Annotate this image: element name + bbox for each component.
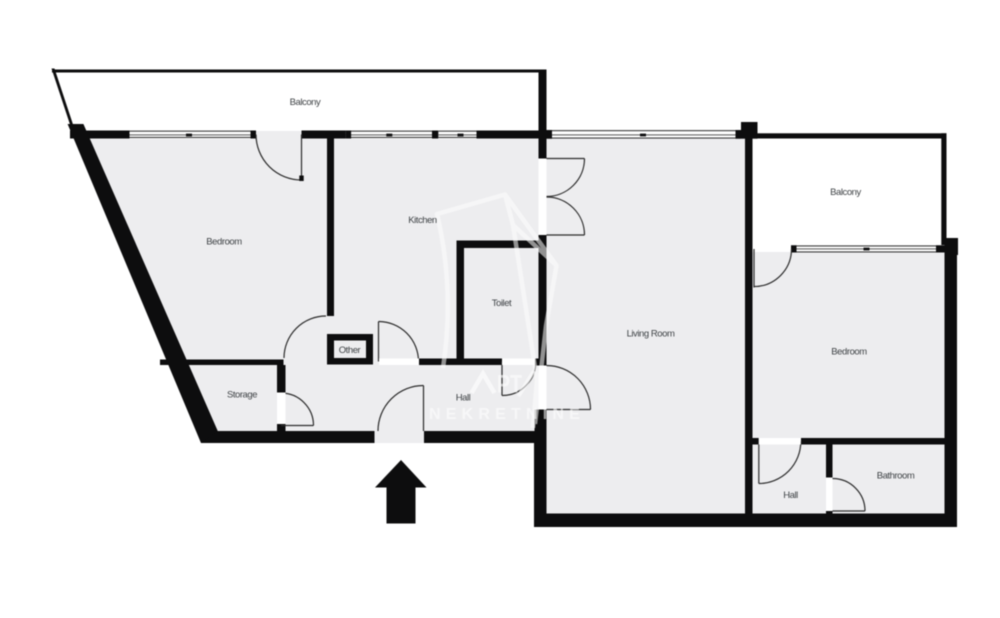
svg-text:NEKRETNINE: NEKRETNINE bbox=[429, 406, 585, 423]
svg-text:Bathroom: Bathroom bbox=[877, 471, 915, 482]
svg-text:Bedroom: Bedroom bbox=[206, 237, 242, 248]
svg-text:Other: Other bbox=[339, 345, 361, 356]
svg-text:Hall: Hall bbox=[456, 393, 471, 404]
svg-text:Kitchen: Kitchen bbox=[408, 215, 437, 226]
svg-text:Bedroom: Bedroom bbox=[831, 347, 867, 358]
svg-text:Hall: Hall bbox=[783, 490, 798, 501]
svg-text:Storage: Storage bbox=[227, 390, 257, 401]
svg-text:Balcony: Balcony bbox=[830, 187, 861, 198]
svg-text:Toilet: Toilet bbox=[492, 298, 512, 309]
svg-text:Living Room: Living Room bbox=[627, 329, 675, 340]
svg-text:Balcony: Balcony bbox=[290, 97, 321, 108]
